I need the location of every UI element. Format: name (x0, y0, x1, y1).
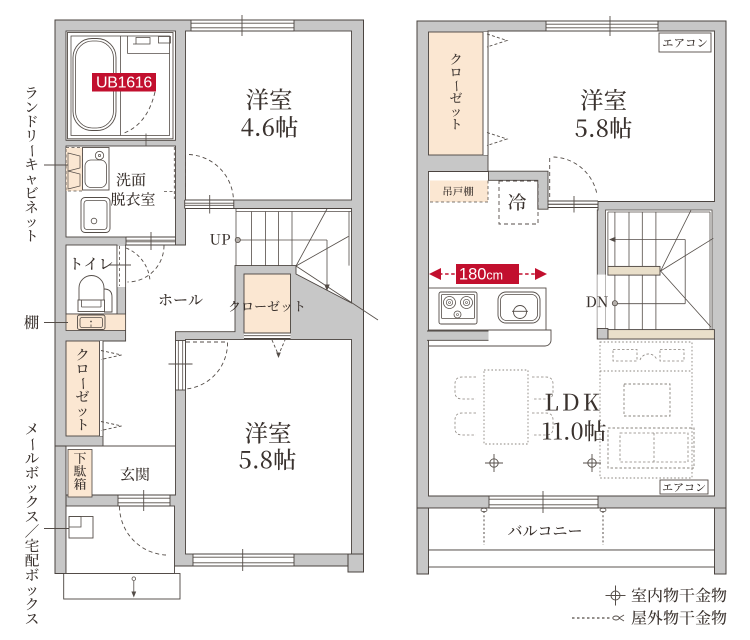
svg-text:UB1616: UB1616 (96, 74, 152, 91)
svg-text:180cm: 180cm (459, 266, 503, 284)
